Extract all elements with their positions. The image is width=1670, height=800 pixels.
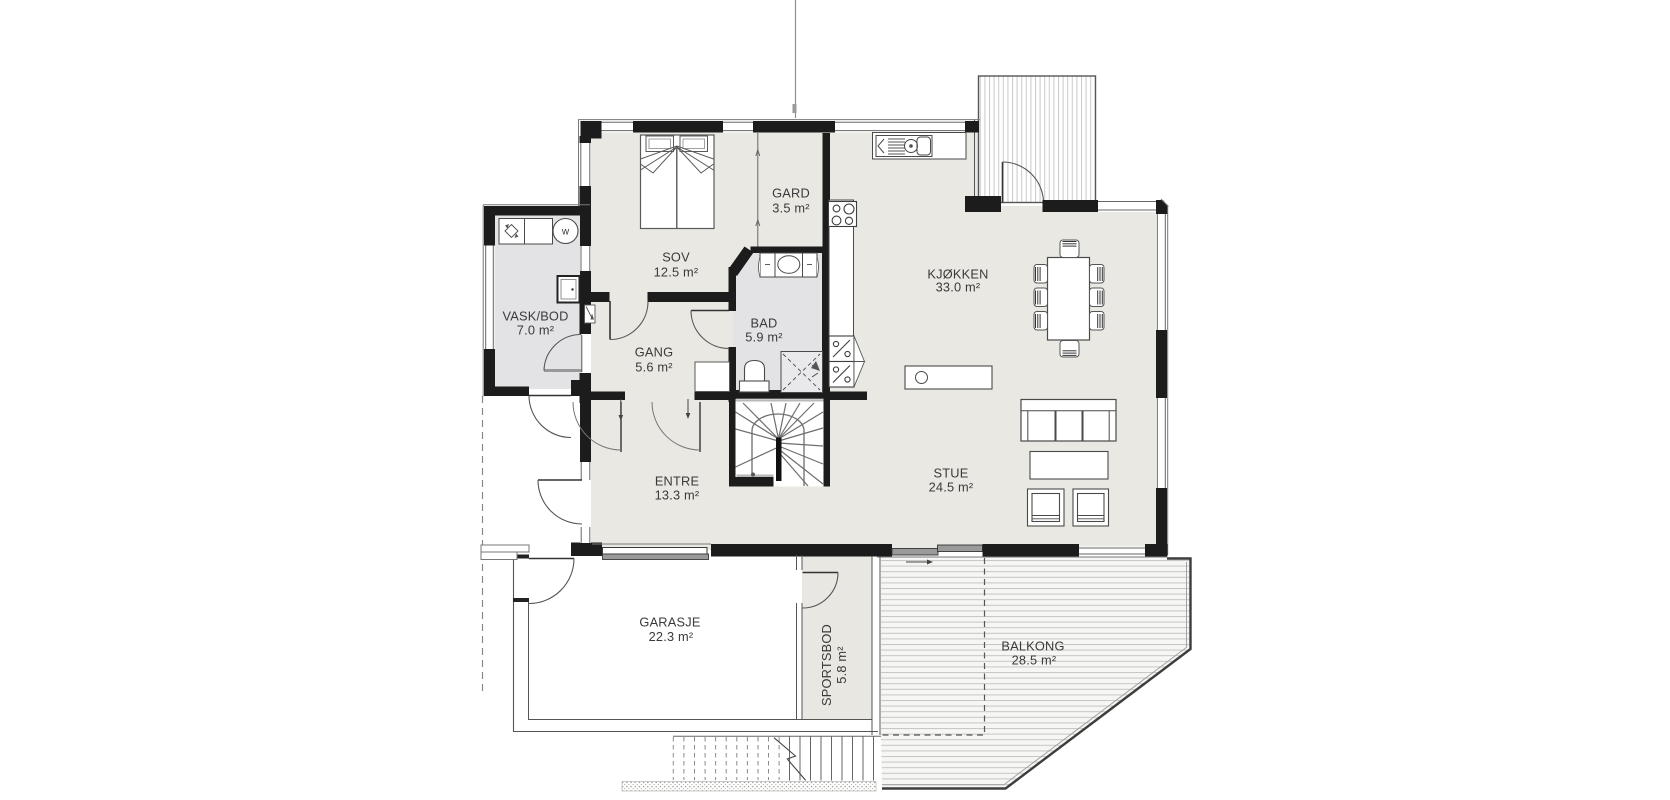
svg-text:24.5 m²: 24.5 m² (929, 480, 974, 495)
svg-text:5.9 m²: 5.9 m² (745, 330, 783, 345)
svg-text:SPORTSBOD: SPORTSBOD (819, 624, 834, 706)
svg-text:GANG: GANG (635, 345, 674, 360)
svg-text:12.5 m²: 12.5 m² (654, 265, 699, 280)
svg-text:SOV: SOV (662, 250, 690, 265)
svg-text:VASK/BOD: VASK/BOD (502, 309, 568, 324)
svg-text:STUE: STUE (934, 466, 969, 481)
svg-text:BAD: BAD (751, 316, 778, 331)
svg-text:22.3 m²: 22.3 m² (649, 629, 694, 644)
svg-text:w: w (561, 227, 570, 238)
svg-text:33.0 m²: 33.0 m² (936, 280, 981, 295)
svg-text:BALKONG: BALKONG (1001, 639, 1064, 654)
svg-text:ENTRE: ENTRE (655, 474, 699, 489)
svg-text:GARD: GARD (772, 186, 810, 201)
svg-text:13.3 m²: 13.3 m² (655, 488, 700, 503)
svg-text:7.0 m²: 7.0 m² (517, 323, 555, 338)
svg-text:3.5 m²: 3.5 m² (772, 201, 810, 216)
svg-text:5.6 m²: 5.6 m² (635, 360, 673, 375)
svg-text:5.8 m²: 5.8 m² (834, 646, 849, 684)
svg-text:28.5 m²: 28.5 m² (1012, 653, 1057, 668)
svg-text:GARASJE: GARASJE (639, 615, 700, 630)
